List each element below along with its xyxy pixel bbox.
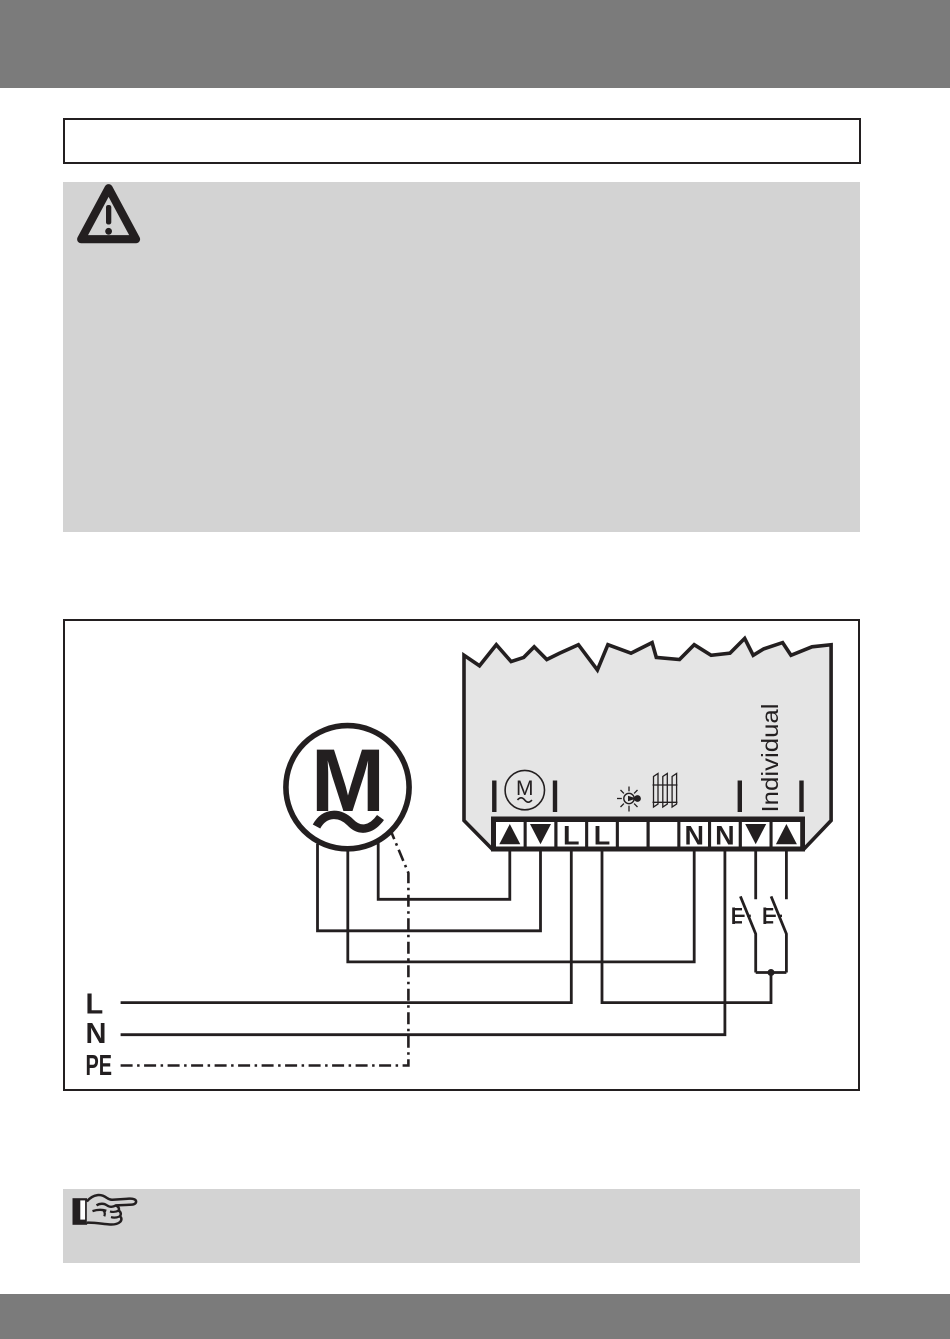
svg-text:L: L <box>594 821 611 851</box>
svg-text:N: N <box>86 1018 107 1050</box>
svg-text:L: L <box>563 821 580 851</box>
svg-text:L: L <box>86 989 104 1021</box>
svg-text:Individual: Individual <box>757 704 783 813</box>
svg-text:M: M <box>516 777 534 800</box>
svg-text:PE: PE <box>86 1050 113 1082</box>
svg-text:N: N <box>684 821 704 851</box>
svg-text:N: N <box>715 821 735 851</box>
